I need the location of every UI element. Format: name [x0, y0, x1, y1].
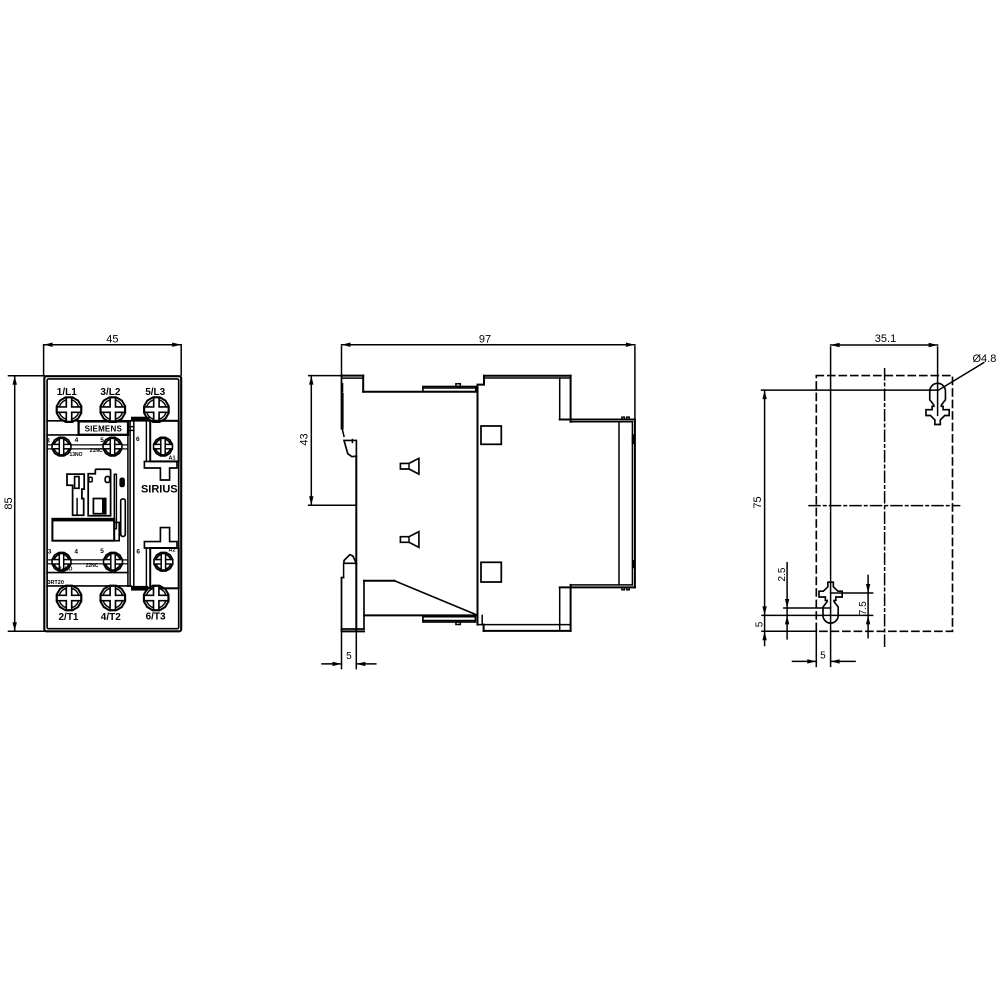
svg-text:3RT20: 3RT20	[47, 580, 64, 586]
svg-text:SIRIUS: SIRIUS	[141, 483, 178, 495]
svg-text:3: 3	[48, 549, 52, 556]
svg-text:43: 43	[299, 433, 311, 445]
svg-text:4: 4	[75, 437, 79, 444]
svg-text:5: 5	[346, 651, 352, 662]
svg-text:21NC: 21NC	[90, 448, 103, 454]
svg-text:4: 4	[74, 548, 78, 555]
svg-text:3/L2: 3/L2	[100, 387, 120, 398]
svg-text:97: 97	[479, 333, 491, 345]
svg-text:2/T1: 2/T1	[58, 612, 78, 623]
svg-text:7.5: 7.5	[858, 601, 869, 615]
svg-text:5: 5	[820, 650, 826, 661]
svg-text:85: 85	[3, 497, 15, 509]
svg-text:13NO: 13NO	[69, 452, 82, 458]
svg-text:4/T2: 4/T2	[101, 612, 121, 623]
svg-text:2.5: 2.5	[777, 567, 788, 581]
svg-text:22NC: 22NC	[86, 563, 99, 569]
svg-text:3: 3	[46, 438, 50, 445]
svg-text:35.1: 35.1	[875, 333, 896, 345]
svg-text:45: 45	[106, 333, 118, 345]
svg-text:6: 6	[136, 436, 140, 443]
svg-text:75: 75	[752, 496, 764, 508]
svg-text:14NO: 14NO	[59, 567, 72, 573]
svg-text:5: 5	[100, 548, 104, 555]
svg-text:A2: A2	[168, 548, 175, 554]
svg-text:1/L1: 1/L1	[57, 387, 77, 398]
svg-text:SIEMENS: SIEMENS	[85, 425, 123, 434]
svg-text:5/L3: 5/L3	[145, 387, 165, 398]
svg-text:5: 5	[755, 621, 766, 627]
svg-text:Ø4.8: Ø4.8	[972, 353, 996, 365]
svg-text:6/T3: 6/T3	[146, 612, 166, 623]
svg-text:6: 6	[136, 549, 140, 556]
